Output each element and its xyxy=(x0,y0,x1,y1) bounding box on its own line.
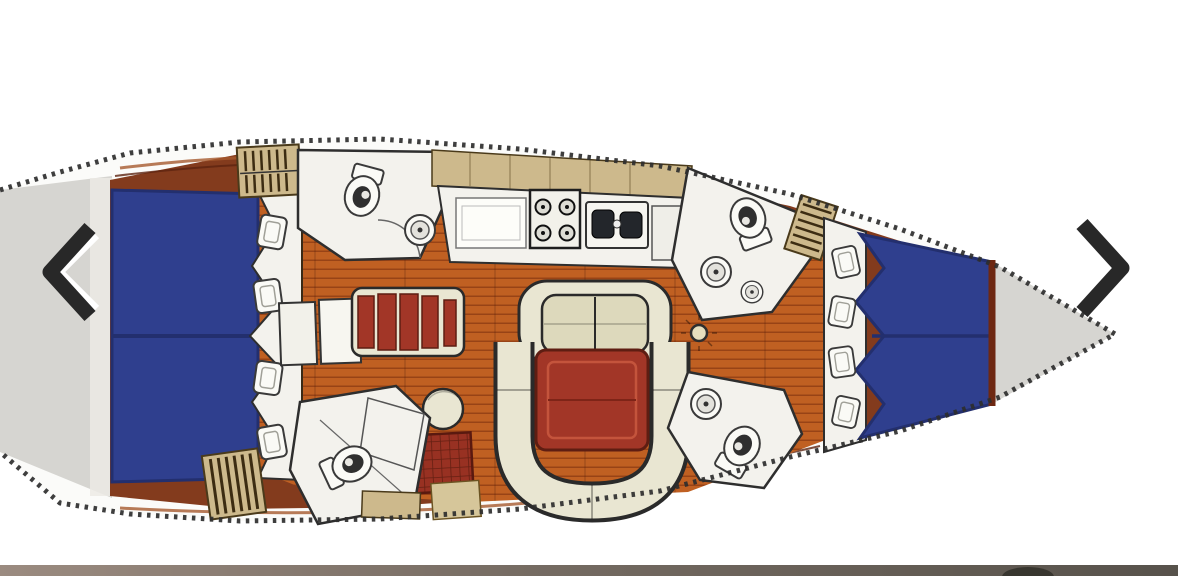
pillow xyxy=(828,346,856,378)
pillow xyxy=(831,245,861,279)
sink-icon xyxy=(701,257,731,287)
sink-icon xyxy=(405,215,435,245)
aft-cabins xyxy=(112,144,302,519)
chevron-left-icon xyxy=(34,216,108,328)
sink-icon xyxy=(691,389,721,419)
stove-icon xyxy=(530,190,580,248)
head-aft-top xyxy=(298,150,448,260)
sideboard-red-slats xyxy=(352,288,464,356)
galley-worktop xyxy=(456,198,526,248)
saloon-table xyxy=(536,350,648,450)
pillow xyxy=(253,360,283,395)
galley xyxy=(432,150,692,268)
nav-station xyxy=(279,298,361,365)
chevron-right-icon xyxy=(1064,212,1138,324)
image-viewer xyxy=(0,0,1178,576)
double-sink-icon xyxy=(586,202,648,248)
next-image-edge-detail xyxy=(1002,567,1054,576)
pillow xyxy=(256,424,287,460)
pillow xyxy=(828,295,857,328)
forward-cabin xyxy=(824,218,992,452)
boat-floorplan-image xyxy=(0,0,1178,576)
companionway-steps-top xyxy=(237,144,302,197)
pillow xyxy=(256,214,287,250)
companionway-ladder-bottom xyxy=(202,448,266,519)
next-image-button[interactable] xyxy=(1064,212,1138,324)
sink-icon xyxy=(741,281,763,303)
pillow xyxy=(831,395,861,429)
next-image-edge-strip[interactable] xyxy=(0,565,1178,576)
previous-image-button[interactable] xyxy=(34,216,108,328)
